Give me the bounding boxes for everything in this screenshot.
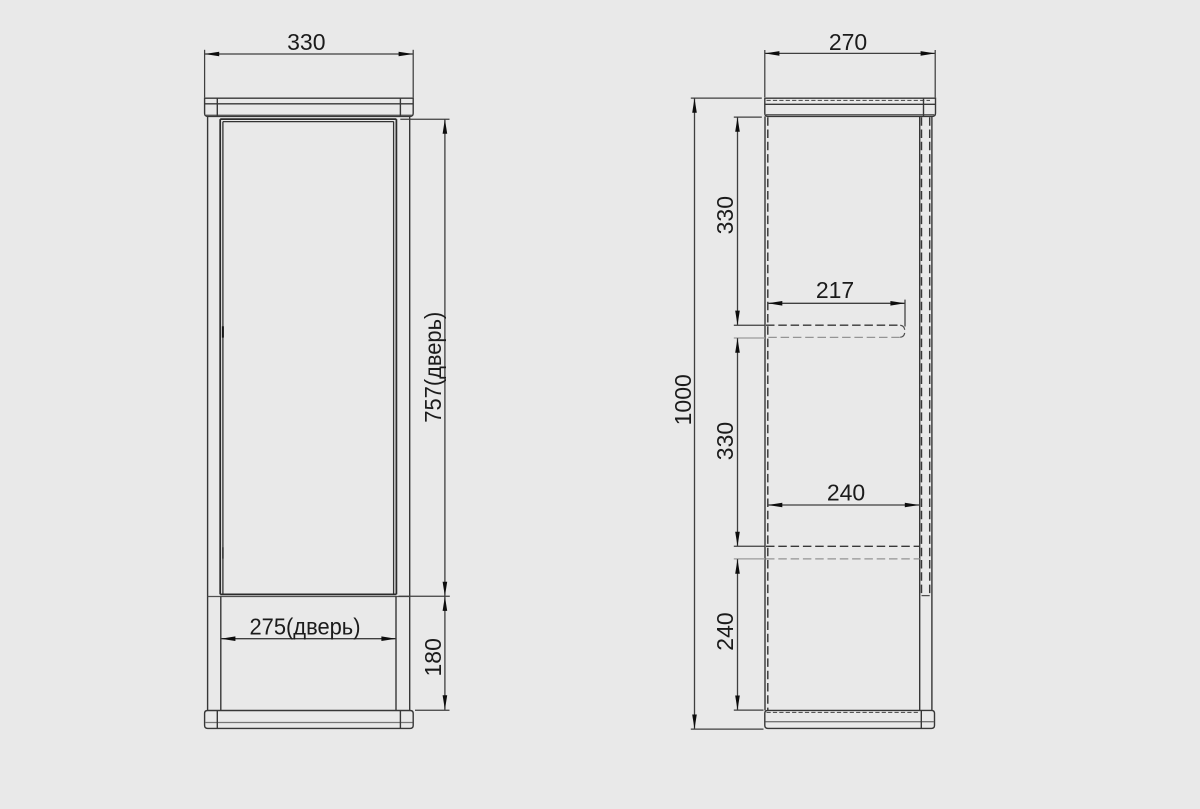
svg-text:275(дверь): 275(дверь) bbox=[250, 613, 361, 639]
svg-text:240: 240 bbox=[827, 479, 865, 505]
svg-text:330: 330 bbox=[287, 29, 325, 55]
svg-text:330: 330 bbox=[712, 422, 738, 460]
svg-text:757(дверь): 757(дверь) bbox=[420, 312, 446, 423]
svg-text:180: 180 bbox=[420, 638, 446, 676]
svg-text:240: 240 bbox=[712, 612, 738, 650]
svg-text:270: 270 bbox=[829, 29, 867, 55]
svg-text:330: 330 bbox=[712, 196, 738, 234]
svg-text:1000: 1000 bbox=[670, 374, 696, 425]
svg-text:217: 217 bbox=[816, 277, 854, 303]
